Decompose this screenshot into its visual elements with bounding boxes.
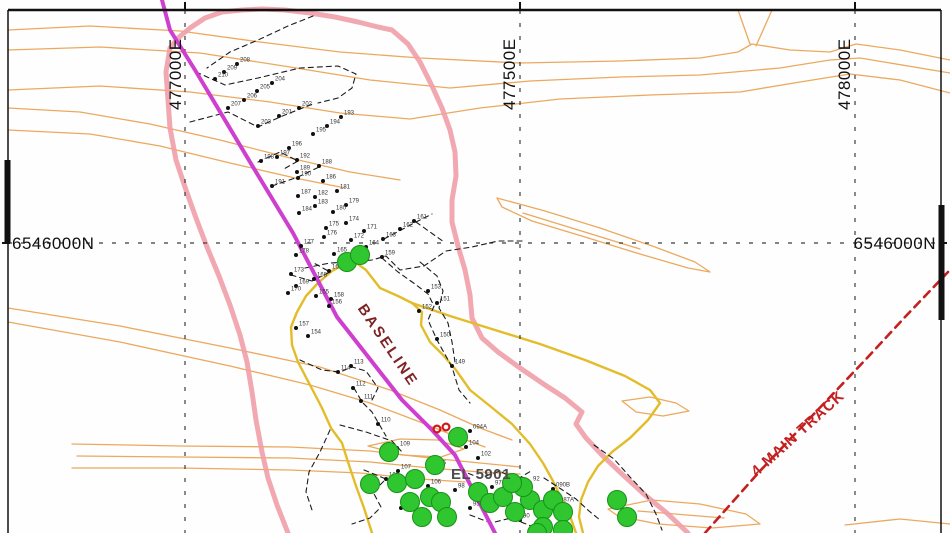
station-label: 110 xyxy=(381,418,391,424)
station-label: 173 xyxy=(294,268,305,274)
station-label: 155 xyxy=(319,290,330,296)
station-label: 177 xyxy=(304,240,315,246)
northing-label-right: 6546000N xyxy=(854,234,936,253)
station-label: 168 xyxy=(317,273,328,279)
station-label: 151 xyxy=(440,297,451,303)
station-label: 102 xyxy=(481,452,492,458)
contour-lines-layer xyxy=(8,10,950,528)
station-label: 156 xyxy=(332,300,343,306)
station-label: 210 xyxy=(218,73,229,79)
station-label: 209 xyxy=(227,66,238,72)
station-label: 186 xyxy=(326,175,337,181)
station-label: 094A xyxy=(473,425,487,431)
station-label: 178 xyxy=(299,249,310,255)
station-label: 170 xyxy=(291,287,302,293)
station-label: 114 xyxy=(341,366,351,372)
station-label: 196 xyxy=(292,142,303,148)
station-label: 106 xyxy=(431,480,442,486)
station-label: 150 xyxy=(440,333,451,339)
station-label: 191 xyxy=(275,180,286,186)
station-label: 197 xyxy=(280,151,291,157)
station-label: 175 xyxy=(329,222,340,228)
station-label: 192 xyxy=(300,154,311,160)
northing-label-left: 6546000N xyxy=(12,234,94,253)
station-label: 109 xyxy=(400,442,411,448)
station-label: 179 xyxy=(349,199,360,205)
station-label: 204 xyxy=(275,77,286,83)
station-label: 184 xyxy=(302,207,313,213)
station-label: 180 xyxy=(336,206,347,212)
station-label: 163 xyxy=(386,233,397,239)
baseline-layer xyxy=(162,0,495,533)
station-label: 198 xyxy=(264,155,275,161)
easting-label-477000: 477000E xyxy=(166,38,185,110)
easting-label-477500: 477500E xyxy=(500,38,519,110)
frame-band-left xyxy=(5,160,11,243)
station-label: 149 xyxy=(455,360,466,366)
station-label: 176 xyxy=(327,231,338,237)
station-label: 194 xyxy=(330,120,341,126)
station-label: 98 xyxy=(458,484,465,490)
tenement-label: EL 5901 xyxy=(451,466,511,483)
station-label: 203 xyxy=(261,120,272,126)
station-label: 158 xyxy=(334,293,345,299)
station-label: 153 xyxy=(431,285,442,291)
station-label: 187 xyxy=(301,190,312,196)
station-label: 201 xyxy=(282,110,293,116)
station-label: 183 xyxy=(318,200,329,206)
main-track-label: 4 MAIN TRACK xyxy=(748,387,848,480)
station-label: 206 xyxy=(247,94,258,100)
station-label: 208 xyxy=(240,58,251,64)
station-label: 95 xyxy=(473,502,480,508)
station-label: 164 xyxy=(369,241,380,247)
station-label: 161 xyxy=(417,215,428,221)
station-label: 107 xyxy=(401,465,412,471)
station-label: 195 xyxy=(316,128,327,134)
station-label: 157 xyxy=(299,322,310,328)
station-label: 154 xyxy=(311,330,322,336)
baseline-label: BASELINE xyxy=(354,301,422,390)
station-label: 169 xyxy=(299,280,310,286)
station-label: 182 xyxy=(318,191,329,197)
station-label: 190 xyxy=(301,172,312,178)
station-label: 113 xyxy=(354,360,364,366)
station-label: 181 xyxy=(340,185,351,191)
station-label: 111 xyxy=(364,395,374,401)
station-label: 159 xyxy=(385,251,396,257)
station-label: 188 xyxy=(322,160,333,166)
station-label: 112 xyxy=(356,382,366,388)
frame-band-right xyxy=(939,205,945,320)
station-label: 205 xyxy=(260,85,271,91)
easting-label-478000: 478000E xyxy=(835,38,854,110)
station-label: 090B xyxy=(556,483,570,489)
station-label: 193 xyxy=(344,111,355,117)
station-label: 92 xyxy=(533,477,540,483)
station-label: 207 xyxy=(231,102,242,108)
exploration-map: 2082092102042052062072022012031931941951… xyxy=(0,0,950,533)
station-label: 104 xyxy=(469,441,480,447)
station-label: 171 xyxy=(367,225,378,231)
station-label: 152 xyxy=(422,305,433,311)
station-label: 174 xyxy=(349,217,360,223)
station-label: 162 xyxy=(403,223,414,229)
station-label: 172 xyxy=(354,234,365,240)
map-svg: 2082092102042052062072022012031931941951… xyxy=(0,0,950,533)
station-label: 202 xyxy=(302,102,313,108)
